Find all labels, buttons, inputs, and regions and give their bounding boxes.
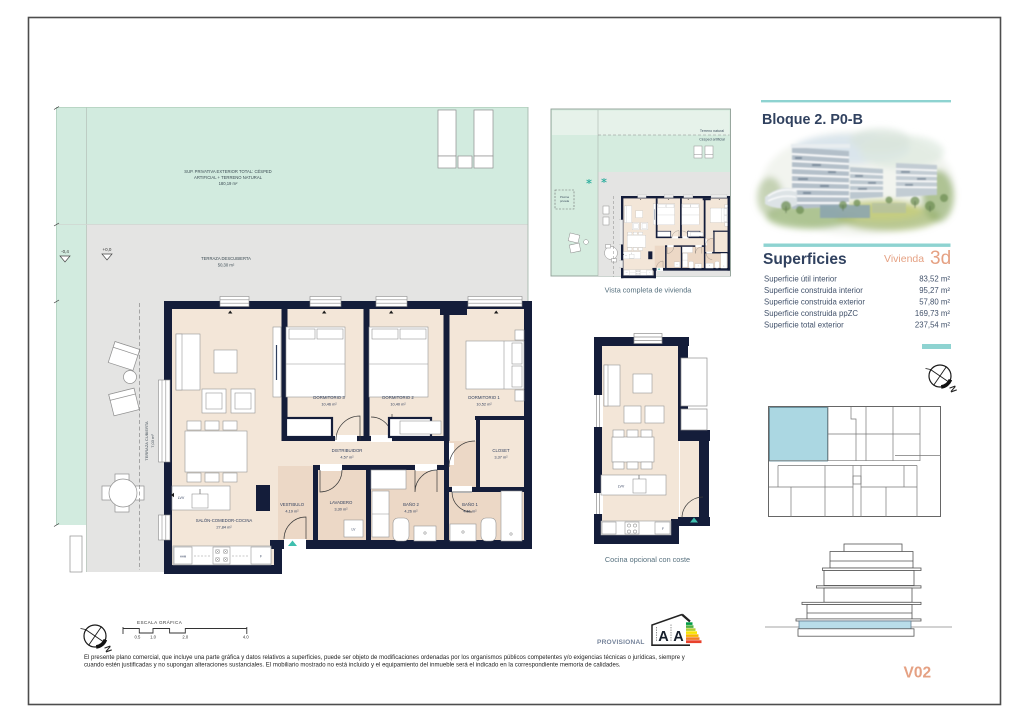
svg-text:Superficie construida interior: Superficie construida interior (764, 286, 863, 295)
svg-text:TERRAZA CUBIERTA: TERRAZA CUBIERTA (144, 421, 149, 461)
svg-text:V02: V02 (904, 665, 932, 682)
svg-text:50,30 m²: 50,30 m² (218, 263, 235, 268)
svg-text:3,30 m²: 3,30 m² (334, 507, 348, 512)
svg-text:4,57 m²: 4,57 m² (340, 455, 354, 460)
svg-text:HHM: HHM (180, 555, 187, 559)
svg-text:180,19 m²: 180,19 m² (219, 181, 238, 186)
svg-text:Bloque 2. P0-B: Bloque 2. P0-B (762, 112, 863, 128)
svg-text:Superficies: Superficies (763, 251, 847, 268)
svg-text:Césped artificial: Césped artificial (699, 138, 725, 142)
svg-text:DORMITORIO 2: DORMITORIO 2 (382, 395, 414, 400)
svg-text:privada: privada (560, 199, 570, 203)
svg-text:4.0: 4.0 (243, 635, 249, 640)
svg-text:10,52 m²: 10,52 m² (476, 402, 492, 407)
svg-text:Superficie útil interior: Superficie útil interior (764, 275, 837, 284)
svg-text:LVV: LVV (618, 485, 625, 489)
svg-text:3d: 3d (930, 248, 951, 269)
svg-text:Superficie construida ppZC: Superficie construida ppZC (764, 309, 858, 318)
svg-text:A: A (673, 629, 684, 645)
svg-text:27,84 m²: 27,84 m² (216, 525, 232, 530)
svg-text:DORMITORIO 1: DORMITORIO 1 (468, 395, 500, 400)
svg-text:BAÑO 1: BAÑO 1 (462, 502, 478, 507)
svg-text:F: F (260, 555, 262, 559)
svg-text:3,37 m²: 3,37 m² (494, 455, 508, 460)
svg-text:LVV: LVV (178, 496, 185, 500)
svg-text:57,80 m²: 57,80 m² (919, 298, 950, 307)
svg-text:Superficie total exterior: Superficie total exterior (764, 321, 844, 330)
svg-text:CLOSET: CLOSET (492, 448, 510, 453)
svg-text:4,19 m²: 4,19 m² (285, 509, 299, 514)
svg-text:83,52 m²: 83,52 m² (919, 275, 950, 284)
svg-text:PROVISIONAL: PROVISIONAL (597, 639, 645, 646)
svg-text:SUP. PRIVATIVA EXTERIOR TOTAL:: SUP. PRIVATIVA EXTERIOR TOTAL: CÉSPED (184, 169, 271, 174)
svg-text:4,26 m²: 4,26 m² (404, 509, 418, 514)
svg-text:10,46 m²: 10,46 m² (321, 402, 337, 407)
svg-text:Vivienda: Vivienda (884, 253, 924, 265)
svg-text:LAVADERO: LAVADERO (330, 500, 353, 505)
svg-text:169,73 m²: 169,73 m² (915, 309, 951, 318)
svg-text:DISTRIBUIDOR: DISTRIBUIDOR (332, 448, 363, 453)
svg-text:237,54 m²: 237,54 m² (915, 321, 951, 330)
svg-text:Cocina opcional con coste: Cocina opcional con coste (605, 555, 690, 564)
svg-text:A: A (658, 629, 669, 645)
svg-text:DORMITORIO 3: DORMITORIO 3 (313, 395, 345, 400)
svg-text:Terreno natural: Terreno natural (700, 129, 724, 133)
svg-text:Superficie construida exterior: Superficie construida exterior (764, 298, 865, 307)
svg-text:BAÑO 2: BAÑO 2 (403, 502, 419, 507)
svg-text:4,61 m²: 4,61 m² (463, 509, 477, 514)
svg-text:cuando estén justificadas y no: cuando estén justificadas y no supongan … (84, 663, 621, 669)
svg-text:95,27 m²: 95,27 m² (919, 286, 950, 295)
svg-text:TERRAZA DESCUBIERTA: TERRAZA DESCUBIERTA (201, 256, 251, 261)
svg-text:ARTIFICIAL + TERRENO NATURAL: ARTIFICIAL + TERRENO NATURAL (194, 175, 263, 180)
svg-text:SALÓN-COMEDOR-COCINA: SALÓN-COMEDOR-COCINA (196, 518, 253, 523)
svg-text:-0,4: -0,4 (61, 249, 69, 254)
svg-text:2.0: 2.0 (182, 635, 188, 640)
svg-text:VESTIBULO: VESTIBULO (280, 502, 305, 507)
svg-text:7,03 m²: 7,03 m² (150, 434, 155, 448)
svg-text:F: F (662, 527, 664, 531)
svg-text:+0,0: +0,0 (103, 247, 112, 252)
svg-text:0.5: 0.5 (134, 635, 140, 640)
svg-text:1.0: 1.0 (150, 635, 156, 640)
svg-text:Vista completa de vivienda: Vista completa de vivienda (605, 286, 693, 295)
svg-text:El presente plano comercial, q: El presente plano comercial, que incluye… (84, 655, 685, 661)
svg-text:ESCALA GRÁFICA: ESCALA GRÁFICA (137, 619, 183, 625)
svg-text:10,40 m²: 10,40 m² (390, 402, 406, 407)
